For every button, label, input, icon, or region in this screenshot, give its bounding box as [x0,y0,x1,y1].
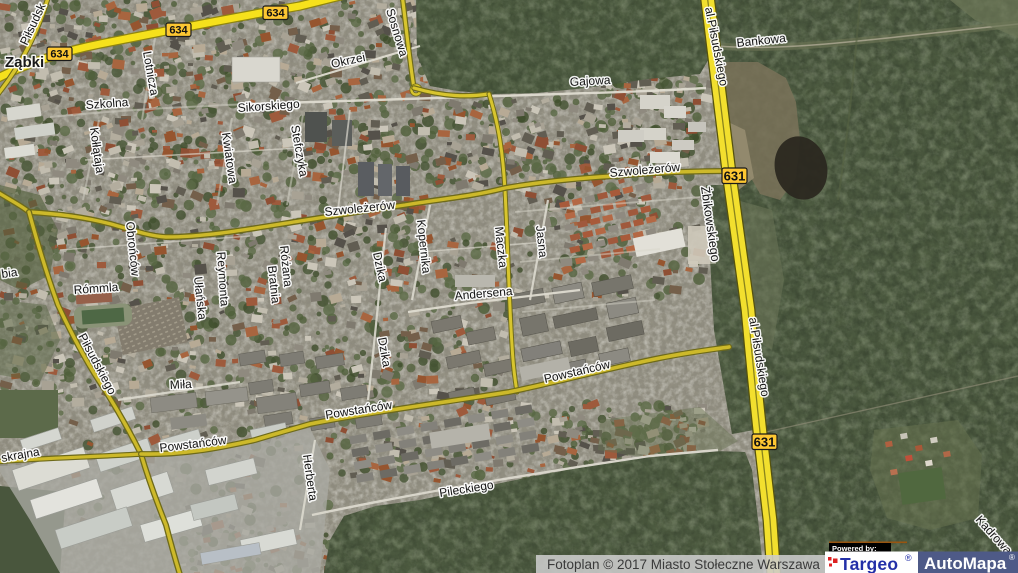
svg-text:Gajowa: Gajowa [569,73,611,89]
svg-text:bia: bia [0,265,18,281]
svg-text:634: 634 [266,8,285,20]
svg-text:634: 634 [50,49,69,61]
svg-text:Miła: Miła [169,377,192,392]
svg-text:634: 634 [169,25,188,37]
svg-text:631: 631 [724,169,746,184]
svg-text:Powered by:: Powered by: [832,544,877,553]
svg-text:®: ® [1009,553,1015,562]
svg-text:Ząbki: Ząbki [5,54,44,71]
svg-text:Targeo: Targeo [840,554,898,573]
svg-text:Szkolna: Szkolna [85,95,129,112]
svg-text:®: ® [905,553,912,563]
svg-text:AutoMapa: AutoMapa [924,554,1007,573]
svg-text:631: 631 [754,435,776,450]
svg-text:Fotoplan © 2017 Miasto Stołecz: Fotoplan © 2017 Miasto Stołeczne Warszaw… [547,557,820,572]
